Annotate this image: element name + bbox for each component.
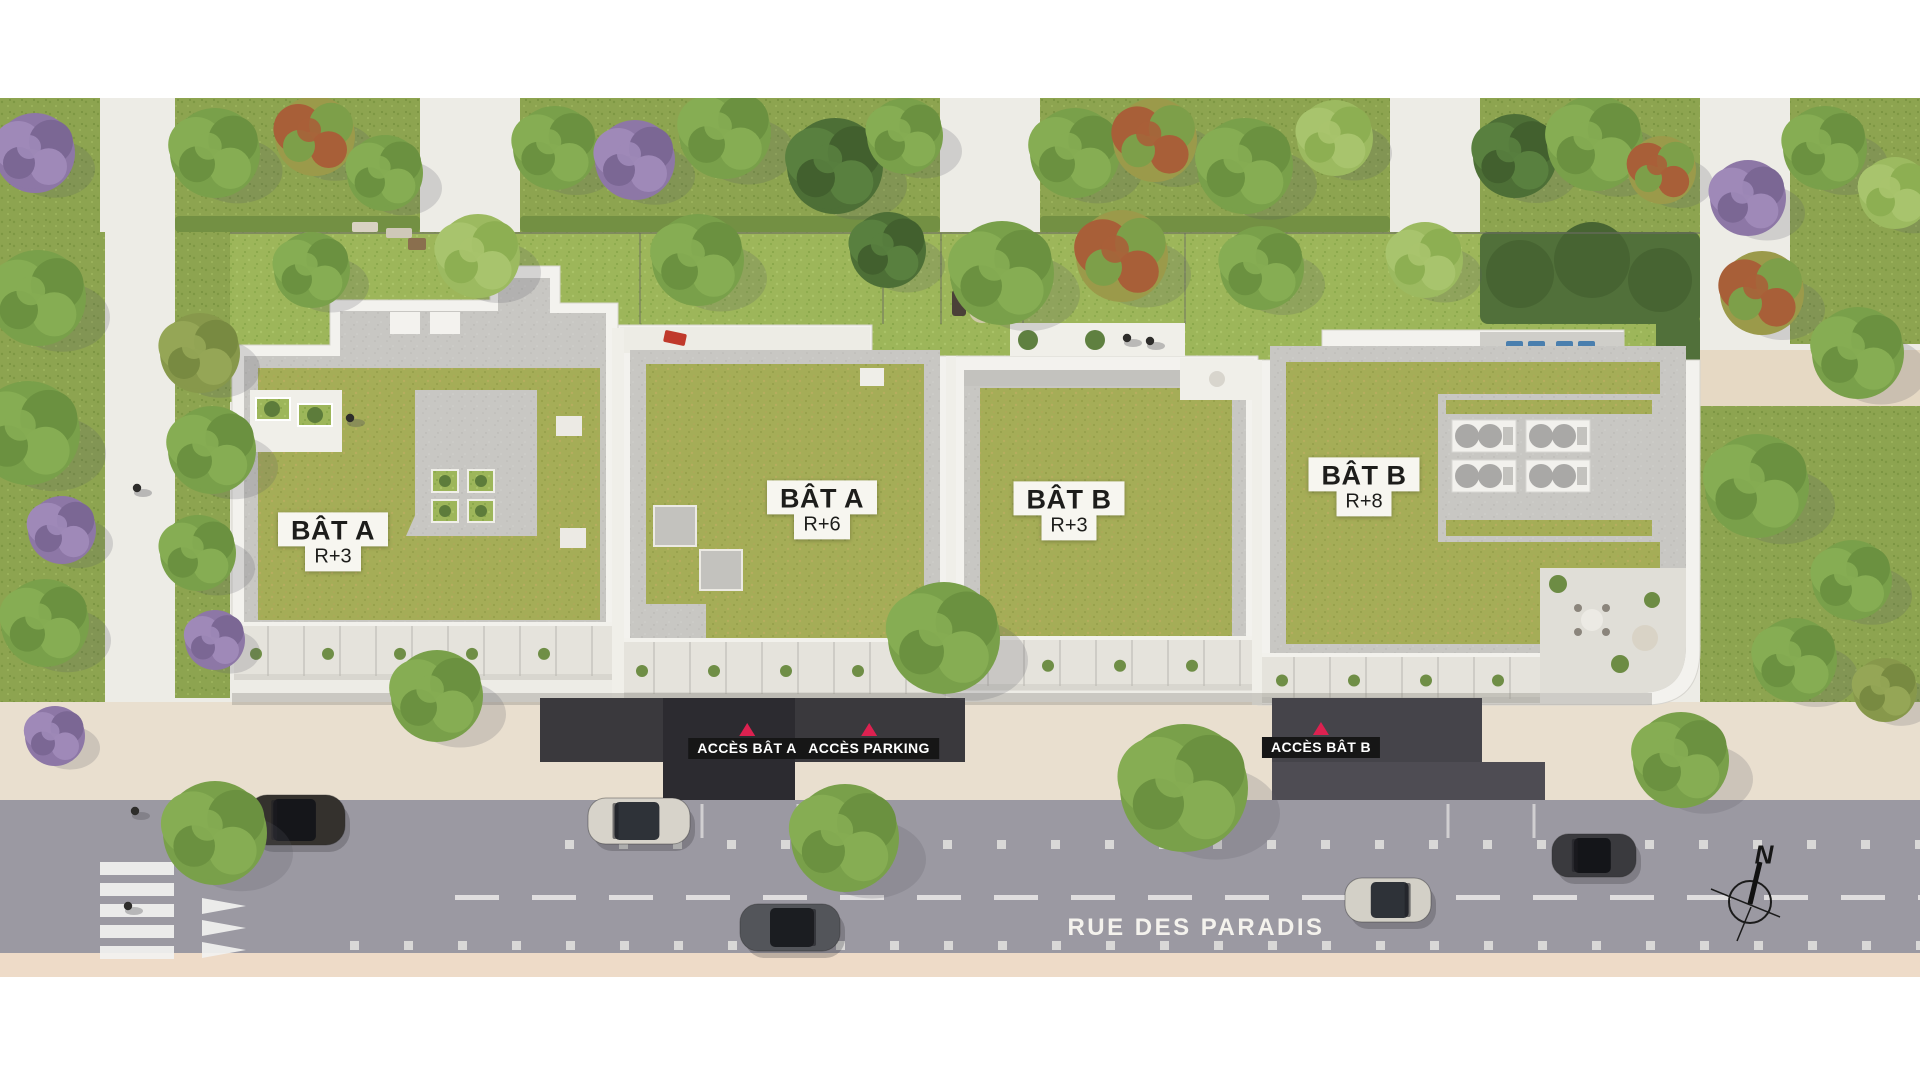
building-floors: R+3: [305, 546, 360, 572]
building-floors: R+3: [1041, 515, 1096, 541]
triangle-up-icon: [861, 723, 877, 736]
access-label: ACCÈS BÂT B: [1262, 737, 1380, 758]
building-floors: R+6: [794, 514, 849, 540]
building-label-bat-a-r6[interactable]: BÂT A R+6: [767, 480, 877, 539]
site-plan: BÂT A R+3 BÂT A R+6 BÂT B R+3 BÂT B R+8 …: [0, 0, 1920, 1080]
building-name: BÂT B: [1014, 481, 1125, 515]
access-label: ACCÈS BÂT A: [688, 738, 806, 759]
north-compass-label: N: [1755, 840, 1774, 871]
access-label: ACCÈS PARKING: [799, 738, 939, 759]
building-label-bat-b-r8[interactable]: BÂT B R+8: [1309, 457, 1420, 516]
triangle-up-icon: [1313, 722, 1329, 735]
triangle-up-icon: [739, 723, 755, 736]
building-name: BÂT A: [278, 512, 388, 546]
building-name: BÂT B: [1309, 457, 1420, 491]
building-label-bat-b-r3[interactable]: BÂT B R+3: [1014, 481, 1125, 540]
access-point-parking: ACCÈS PARKING: [799, 723, 939, 759]
street-name: RUE DES PARADIS: [1067, 914, 1324, 942]
building-floors: R+8: [1336, 491, 1391, 517]
building-label-bat-a-r3[interactable]: BÂT A R+3: [278, 512, 388, 571]
building-name: BÂT A: [767, 480, 877, 514]
aerial-scene: BÂT A R+3 BÂT A R+6 BÂT B R+3 BÂT B R+8 …: [0, 98, 1920, 977]
access-point-bat-a: ACCÈS BÂT A: [688, 723, 806, 759]
access-point-bat-b: ACCÈS BÂT B: [1262, 722, 1380, 758]
